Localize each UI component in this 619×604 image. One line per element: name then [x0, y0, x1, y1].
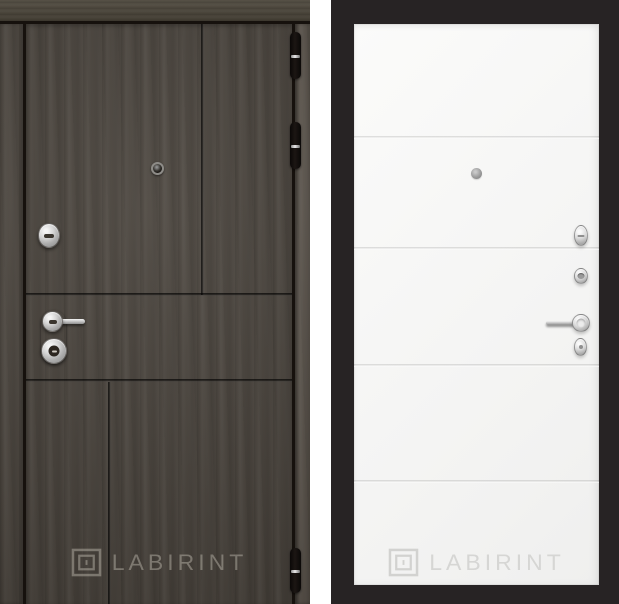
hinge-top-icon — [290, 32, 301, 79]
hinge-middle-icon — [290, 122, 301, 169]
handle-rose-icon — [42, 311, 63, 332]
molding-line-2 — [354, 247, 599, 250]
door-exterior-panel: LABIRINT — [0, 0, 310, 604]
lock-rail-bottom-groove — [26, 379, 292, 382]
upper-vertical-groove — [201, 24, 204, 295]
door-leaf-interior: LABIRINT — [354, 24, 599, 585]
product-image-two-door-sides: LABIRINT — [0, 0, 619, 604]
labyrinth-logo-icon — [388, 548, 419, 577]
peephole-icon — [471, 168, 482, 179]
door-leaf-exterior: LABIRINT — [26, 24, 292, 604]
frame-right-gap-line — [292, 24, 295, 604]
door-interior-panel: LABIRINT — [331, 0, 619, 604]
peephole-icon — [151, 162, 164, 175]
door-frame-head-rail — [0, 0, 310, 21]
escutcheon-icon — [574, 338, 587, 356]
door-frame-right-stile — [295, 24, 310, 604]
thumbturn-knob-icon — [574, 225, 588, 246]
keyhole-cylinder-icon — [41, 338, 67, 364]
handle-rose-icon — [572, 314, 590, 332]
hinge-bottom-icon — [290, 548, 301, 593]
brand-watermark-text: LABIRINT — [112, 551, 248, 574]
molding-line-4 — [354, 480, 599, 483]
labyrinth-logo-icon — [71, 548, 102, 577]
brand-watermark-dark: LABIRINT — [26, 548, 292, 577]
upper-cylinder-escutcheon-icon — [38, 223, 60, 248]
lock-rail-top-groove — [26, 293, 292, 296]
molding-line-3 — [354, 364, 599, 367]
key-cylinder-icon — [574, 268, 588, 284]
door-frame-left-stile — [0, 24, 23, 604]
brand-watermark-light: LABIRINT — [354, 548, 599, 577]
molding-line-1 — [354, 136, 599, 139]
brand-watermark-text: LABIRINT — [429, 551, 565, 574]
